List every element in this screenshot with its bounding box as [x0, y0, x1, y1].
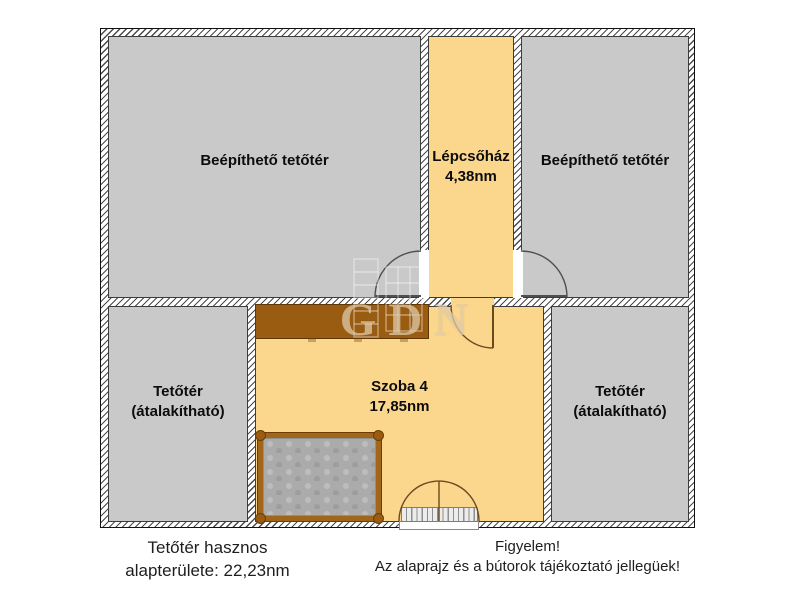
- doorway-staircase-right: [513, 250, 523, 298]
- mattress: [263, 438, 376, 516]
- floorplan-screenshot: Beépíthető tetőtér Lépcsőház 4,38nm Beép…: [0, 0, 800, 600]
- bed: [258, 433, 381, 521]
- room-attic-convertible-left: Tetőtér (átalakítható): [108, 306, 248, 522]
- area-summary: Tetőtér hasznos alapterülete: 22,23nm: [100, 536, 315, 582]
- bed-knob: [373, 430, 384, 441]
- room-label: Lépcsőház: [432, 147, 510, 167]
- area-summary-line1: Tetőtér hasznos: [100, 536, 315, 559]
- bed-knob: [373, 513, 384, 524]
- bed-knob: [255, 430, 266, 441]
- room-label: Tetőtér: [595, 382, 645, 402]
- room-buildable-attic-left: Beépíthető tetőtér: [108, 36, 421, 298]
- room-buildable-attic-right: Beépíthető tetőtér: [521, 36, 689, 298]
- disclaimer-title: Figyelem!: [360, 537, 695, 557]
- room-label: Beépíthető tetőtér: [541, 151, 669, 171]
- room-staircase: Lépcsőház 4,38nm: [428, 36, 514, 298]
- room-note: (átalakítható): [131, 402, 224, 422]
- bed-knob: [255, 513, 266, 524]
- disclaimer: Figyelem! Az alaprajz és a bútorok tájék…: [360, 537, 695, 577]
- room-label: Beépíthető tetőtér: [200, 151, 328, 171]
- area-summary-line2: alapterülete: 22,23nm: [100, 559, 315, 582]
- doorway-szoba4: [451, 298, 494, 307]
- room-label: Szoba 4: [371, 377, 428, 397]
- room-attic-convertible-right: Tetőtér (átalakítható): [551, 306, 689, 522]
- room-area: 17,85nm: [369, 397, 429, 417]
- radiator: [401, 507, 478, 522]
- disclaimer-text: Az alaprajz és a bútorok tájékoztató jel…: [360, 557, 695, 577]
- room-note: (átalakítható): [573, 402, 666, 422]
- window: [399, 521, 479, 530]
- wardrobe: [255, 304, 429, 339]
- plan-outline: Beépíthető tetőtér Lépcsőház 4,38nm Beép…: [100, 28, 695, 528]
- room-area: 4,38nm: [445, 167, 497, 187]
- doorway-staircase-left: [419, 250, 429, 298]
- room-label: Tetőtér: [153, 382, 203, 402]
